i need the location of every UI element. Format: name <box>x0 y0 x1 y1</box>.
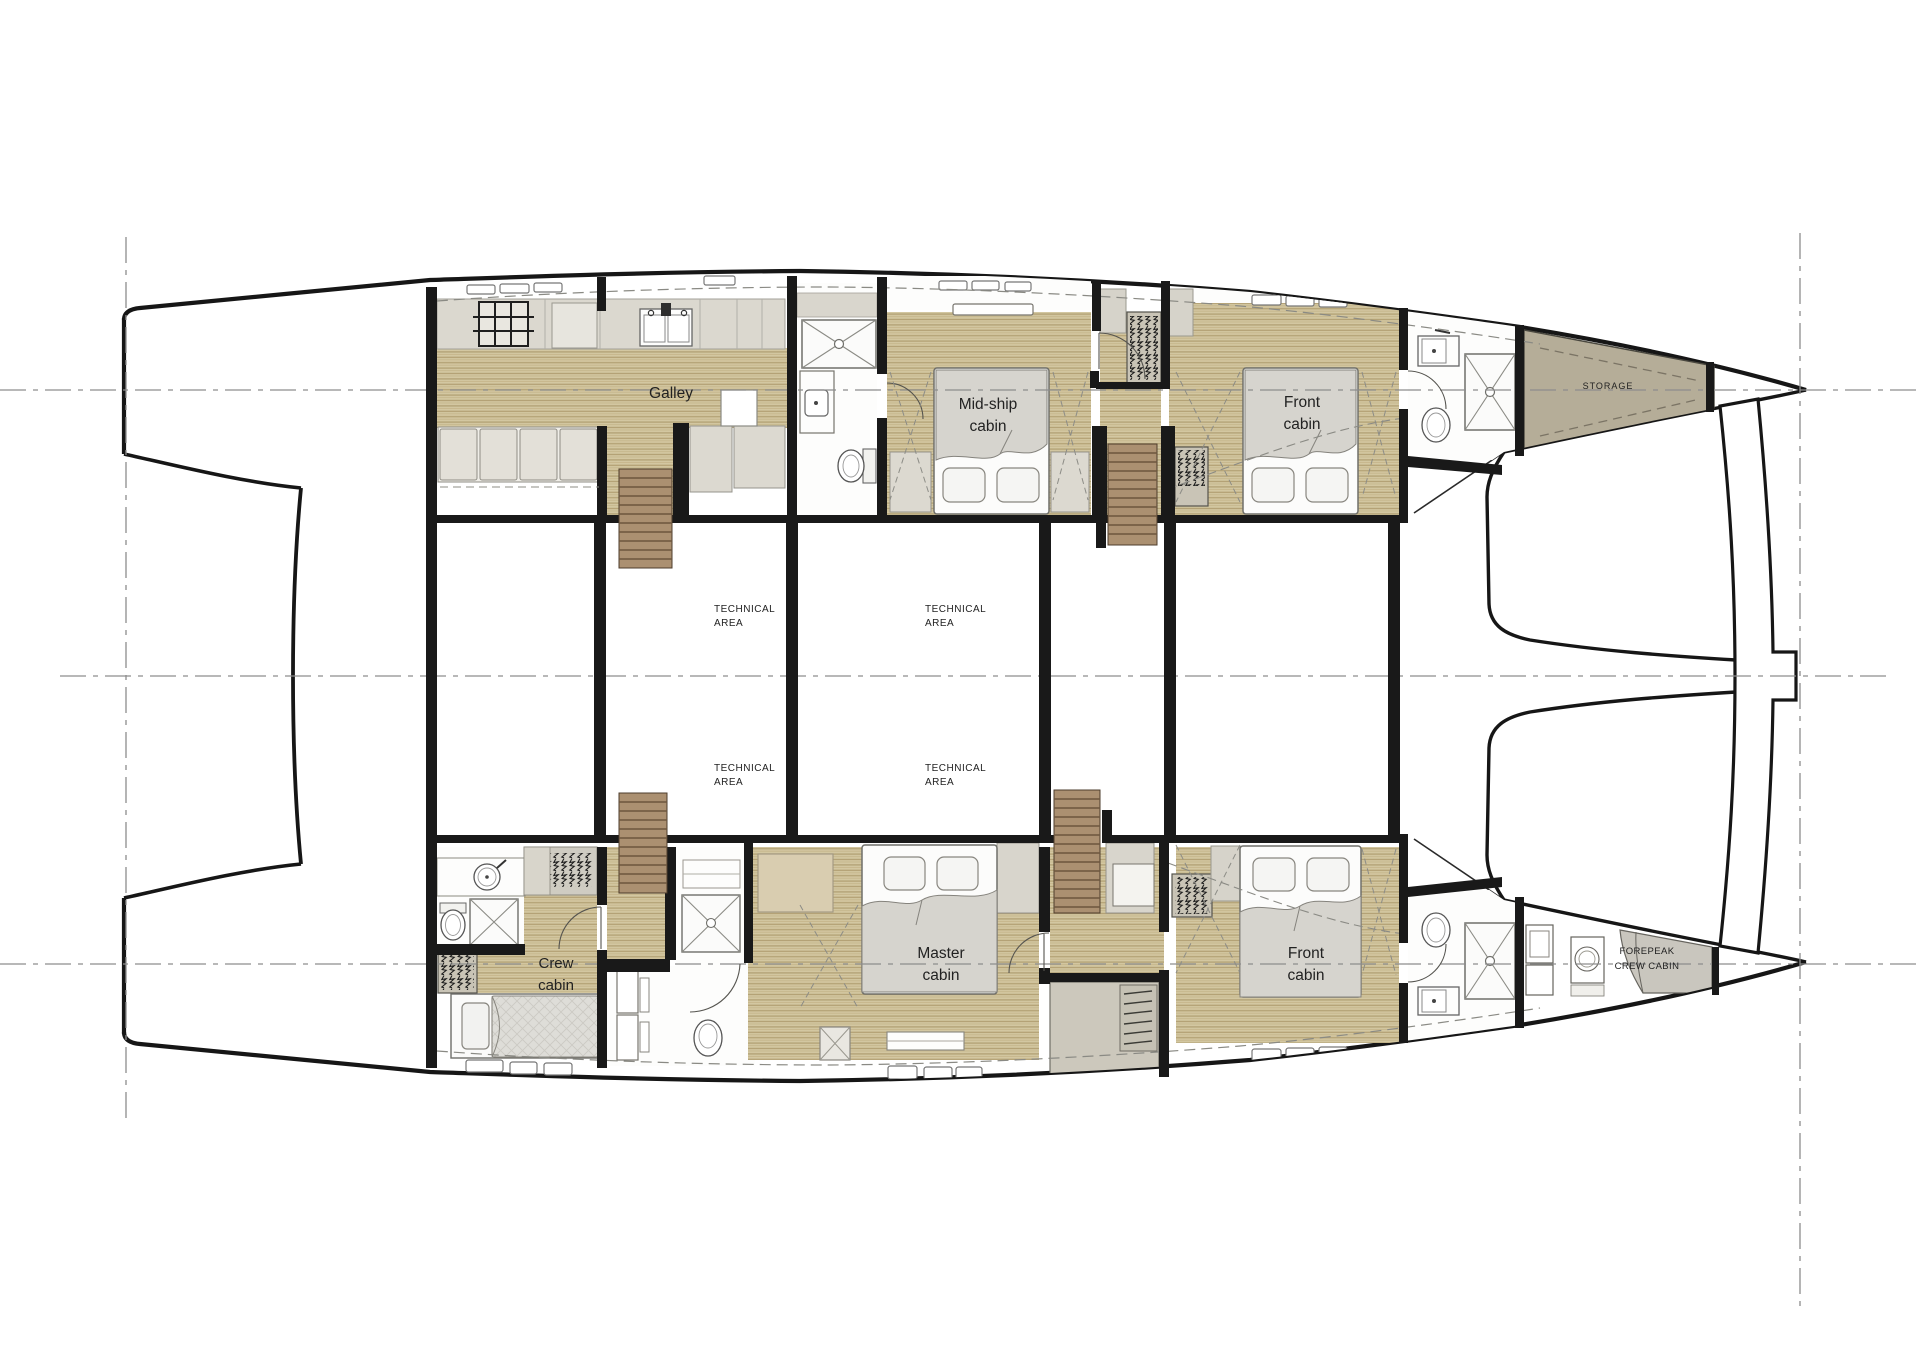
svg-text:Galley: Galley <box>649 385 693 402</box>
svg-text:Crew: Crew <box>538 955 573 972</box>
svg-text:TECHNICAL: TECHNICAL <box>714 763 775 774</box>
svg-text:STORAGE: STORAGE <box>1583 381 1634 391</box>
svg-text:TECHNICAL: TECHNICAL <box>714 604 775 615</box>
svg-text:cabin: cabin <box>969 418 1006 435</box>
svg-text:Front: Front <box>1288 945 1325 962</box>
svg-text:Master: Master <box>917 945 964 962</box>
svg-text:AREA: AREA <box>925 777 954 788</box>
svg-text:TECHNICAL: TECHNICAL <box>925 763 986 774</box>
svg-text:CREW CABIN: CREW CABIN <box>1615 961 1680 972</box>
svg-text:cabin: cabin <box>1283 416 1320 433</box>
svg-text:Mid-ship: Mid-ship <box>959 396 1018 413</box>
svg-text:cabin: cabin <box>1287 967 1324 984</box>
svg-text:cabin: cabin <box>922 967 959 984</box>
svg-text:AREA: AREA <box>714 618 743 629</box>
svg-text:Front: Front <box>1284 394 1321 411</box>
svg-text:TECHNICAL: TECHNICAL <box>925 604 986 615</box>
svg-text:AREA: AREA <box>925 618 954 629</box>
svg-text:AREA: AREA <box>714 777 743 788</box>
svg-text:FOREPEAK: FOREPEAK <box>1620 946 1675 957</box>
svg-text:cabin: cabin <box>538 977 574 994</box>
